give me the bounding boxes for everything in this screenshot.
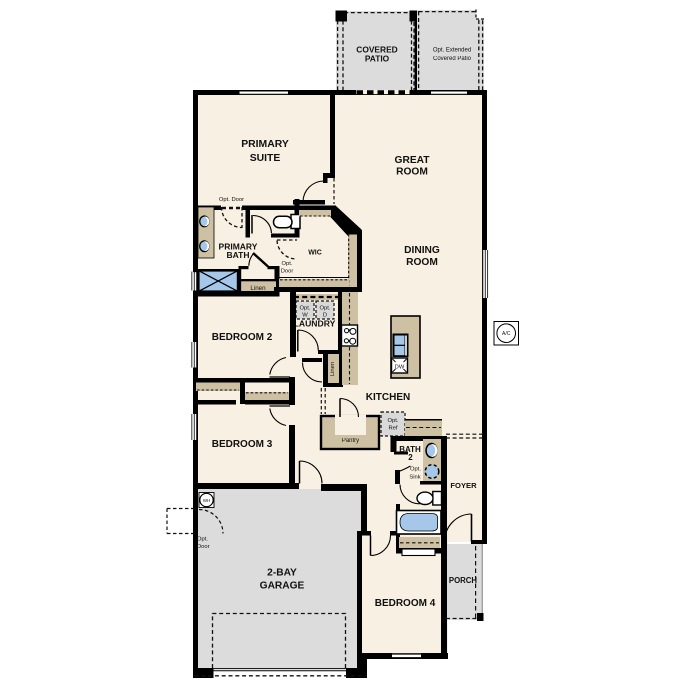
svg-text:Opt. Door: Opt. Door	[219, 197, 244, 203]
svg-text:Opt.: Opt.	[410, 467, 421, 473]
svg-text:Opt.: Opt.	[388, 418, 399, 424]
svg-text:ROOM: ROOM	[406, 257, 438, 268]
svg-text:KITCHEN: KITCHEN	[366, 392, 410, 403]
svg-text:PATIO: PATIO	[365, 54, 390, 64]
svg-text:FOYER: FOYER	[450, 481, 477, 490]
svg-text:Pantry: Pantry	[342, 438, 359, 444]
svg-text:Opt.: Opt.	[282, 261, 293, 267]
svg-text:Linen: Linen	[250, 285, 266, 292]
svg-text:Opt.: Opt.	[320, 306, 331, 312]
svg-text:2: 2	[408, 453, 413, 462]
svg-text:Door: Door	[197, 544, 210, 550]
svg-text:Door: Door	[281, 269, 294, 275]
svg-text:GARAGE: GARAGE	[260, 581, 305, 592]
svg-text:Opt.: Opt.	[197, 537, 208, 543]
svg-text:BEDROOM 4: BEDROOM 4	[375, 598, 436, 609]
svg-text:2-BAY: 2-BAY	[267, 568, 297, 579]
svg-text:LAUNDRY: LAUNDRY	[294, 319, 336, 329]
svg-text:A/C: A/C	[502, 331, 511, 337]
svg-text:Ref: Ref	[388, 426, 397, 432]
svg-text:WIC: WIC	[308, 250, 322, 257]
svg-text:PORCH: PORCH	[449, 576, 478, 585]
svg-text:DINING: DINING	[404, 245, 440, 256]
svg-text:WH: WH	[203, 498, 210, 503]
svg-text:PRIMARY: PRIMARY	[241, 139, 289, 150]
svg-text:Sink: Sink	[409, 474, 420, 480]
svg-text:Opt.: Opt.	[300, 306, 311, 312]
svg-text:DW: DW	[395, 364, 405, 370]
svg-text:GREAT: GREAT	[395, 155, 431, 166]
svg-text:SUITE: SUITE	[250, 153, 281, 164]
svg-text:Linen: Linen	[330, 362, 336, 376]
svg-text:BEDROOM 3: BEDROOM 3	[212, 439, 273, 450]
svg-text:BEDROOM 2: BEDROOM 2	[212, 332, 273, 343]
svg-text:BATH: BATH	[227, 250, 250, 260]
svg-text:ROOM: ROOM	[396, 167, 428, 178]
svg-text:Covered Patio: Covered Patio	[433, 56, 472, 62]
svg-text:Opt. Extended: Opt. Extended	[433, 48, 471, 54]
